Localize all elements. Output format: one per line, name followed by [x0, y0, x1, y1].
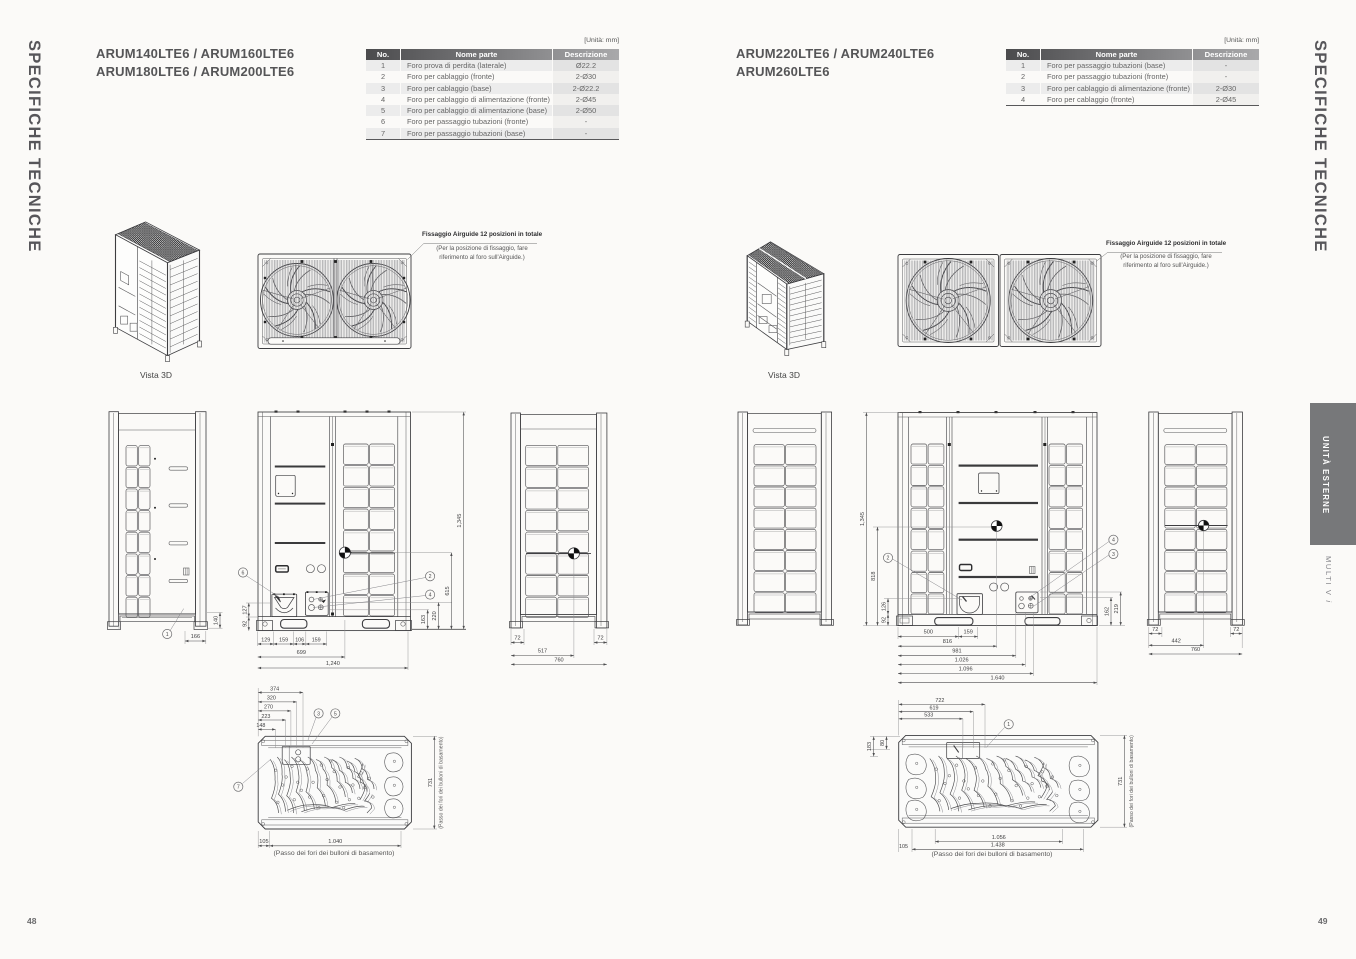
- svg-text:159: 159: [312, 637, 321, 643]
- svg-text:5: 5: [334, 711, 337, 717]
- svg-text:3: 3: [1112, 552, 1115, 558]
- svg-text:1.096: 1.096: [959, 667, 973, 673]
- svg-text:320: 320: [267, 696, 276, 702]
- svg-text:374: 374: [270, 686, 279, 692]
- svg-text:183: 183: [867, 742, 873, 751]
- svg-text:126: 126: [882, 602, 888, 611]
- svg-text:140: 140: [214, 616, 220, 625]
- svg-text:129: 129: [261, 637, 270, 643]
- svg-text:(Passo dei fori dei bulloni di: (Passo dei fori dei bulloni di basamento…: [439, 736, 445, 829]
- svg-text:2: 2: [887, 556, 890, 562]
- svg-text:2: 2: [429, 574, 432, 580]
- svg-text:1,240: 1,240: [326, 661, 340, 667]
- svg-text:1,345: 1,345: [457, 514, 463, 528]
- svg-text:92: 92: [882, 617, 888, 623]
- svg-text:818: 818: [871, 572, 877, 581]
- svg-text:760: 760: [1191, 647, 1200, 653]
- svg-text:223: 223: [261, 714, 270, 720]
- svg-text:80: 80: [880, 740, 886, 746]
- svg-text:1.438: 1.438: [991, 843, 1005, 849]
- svg-text:72: 72: [1233, 627, 1239, 633]
- svg-text:1.040: 1.040: [328, 839, 342, 845]
- svg-text:1,345: 1,345: [860, 512, 866, 526]
- svg-text:127: 127: [242, 605, 248, 614]
- svg-text:106: 106: [295, 637, 304, 643]
- svg-text:148: 148: [256, 723, 265, 729]
- svg-text:163: 163: [421, 615, 427, 624]
- svg-text:72: 72: [597, 636, 603, 642]
- svg-text:760: 760: [554, 657, 563, 663]
- svg-text:619: 619: [930, 706, 939, 712]
- svg-text:1: 1: [1007, 722, 1010, 728]
- svg-text:442: 442: [1172, 639, 1181, 645]
- svg-text:816: 816: [943, 639, 952, 645]
- svg-text:105: 105: [259, 839, 268, 845]
- svg-text:72: 72: [514, 636, 520, 642]
- svg-text:3: 3: [317, 711, 320, 717]
- svg-text:159: 159: [279, 637, 288, 643]
- svg-text:699: 699: [297, 650, 306, 656]
- svg-text:533: 533: [924, 713, 933, 719]
- svg-text:1.056: 1.056: [992, 835, 1006, 841]
- svg-text:159: 159: [964, 630, 973, 636]
- svg-text:166: 166: [191, 634, 200, 640]
- svg-text:517: 517: [538, 649, 547, 655]
- svg-text:1.026: 1.026: [955, 658, 969, 664]
- svg-text:162: 162: [1105, 607, 1111, 616]
- svg-text:270: 270: [264, 705, 273, 711]
- svg-text:92: 92: [242, 621, 248, 627]
- svg-text:72: 72: [1152, 627, 1158, 633]
- svg-text:981: 981: [952, 649, 961, 655]
- svg-text:500: 500: [924, 630, 933, 636]
- svg-text:4: 4: [1112, 538, 1115, 544]
- svg-text:219: 219: [1114, 604, 1120, 613]
- svg-text:731: 731: [1118, 777, 1124, 786]
- svg-text:722: 722: [935, 698, 944, 704]
- svg-text:4: 4: [429, 593, 432, 599]
- svg-text:6: 6: [242, 570, 245, 576]
- svg-text:731: 731: [428, 778, 434, 787]
- svg-text:105: 105: [899, 844, 908, 850]
- svg-text:615: 615: [445, 586, 451, 595]
- svg-text:1: 1: [166, 632, 169, 638]
- svg-text:1.640: 1.640: [991, 676, 1005, 682]
- svg-text:7: 7: [237, 785, 240, 791]
- svg-text:220: 220: [432, 611, 438, 620]
- svg-text:(Passo dei fori dei bulloni di: (Passo dei fori dei bulloni di basamento…: [1129, 735, 1135, 828]
